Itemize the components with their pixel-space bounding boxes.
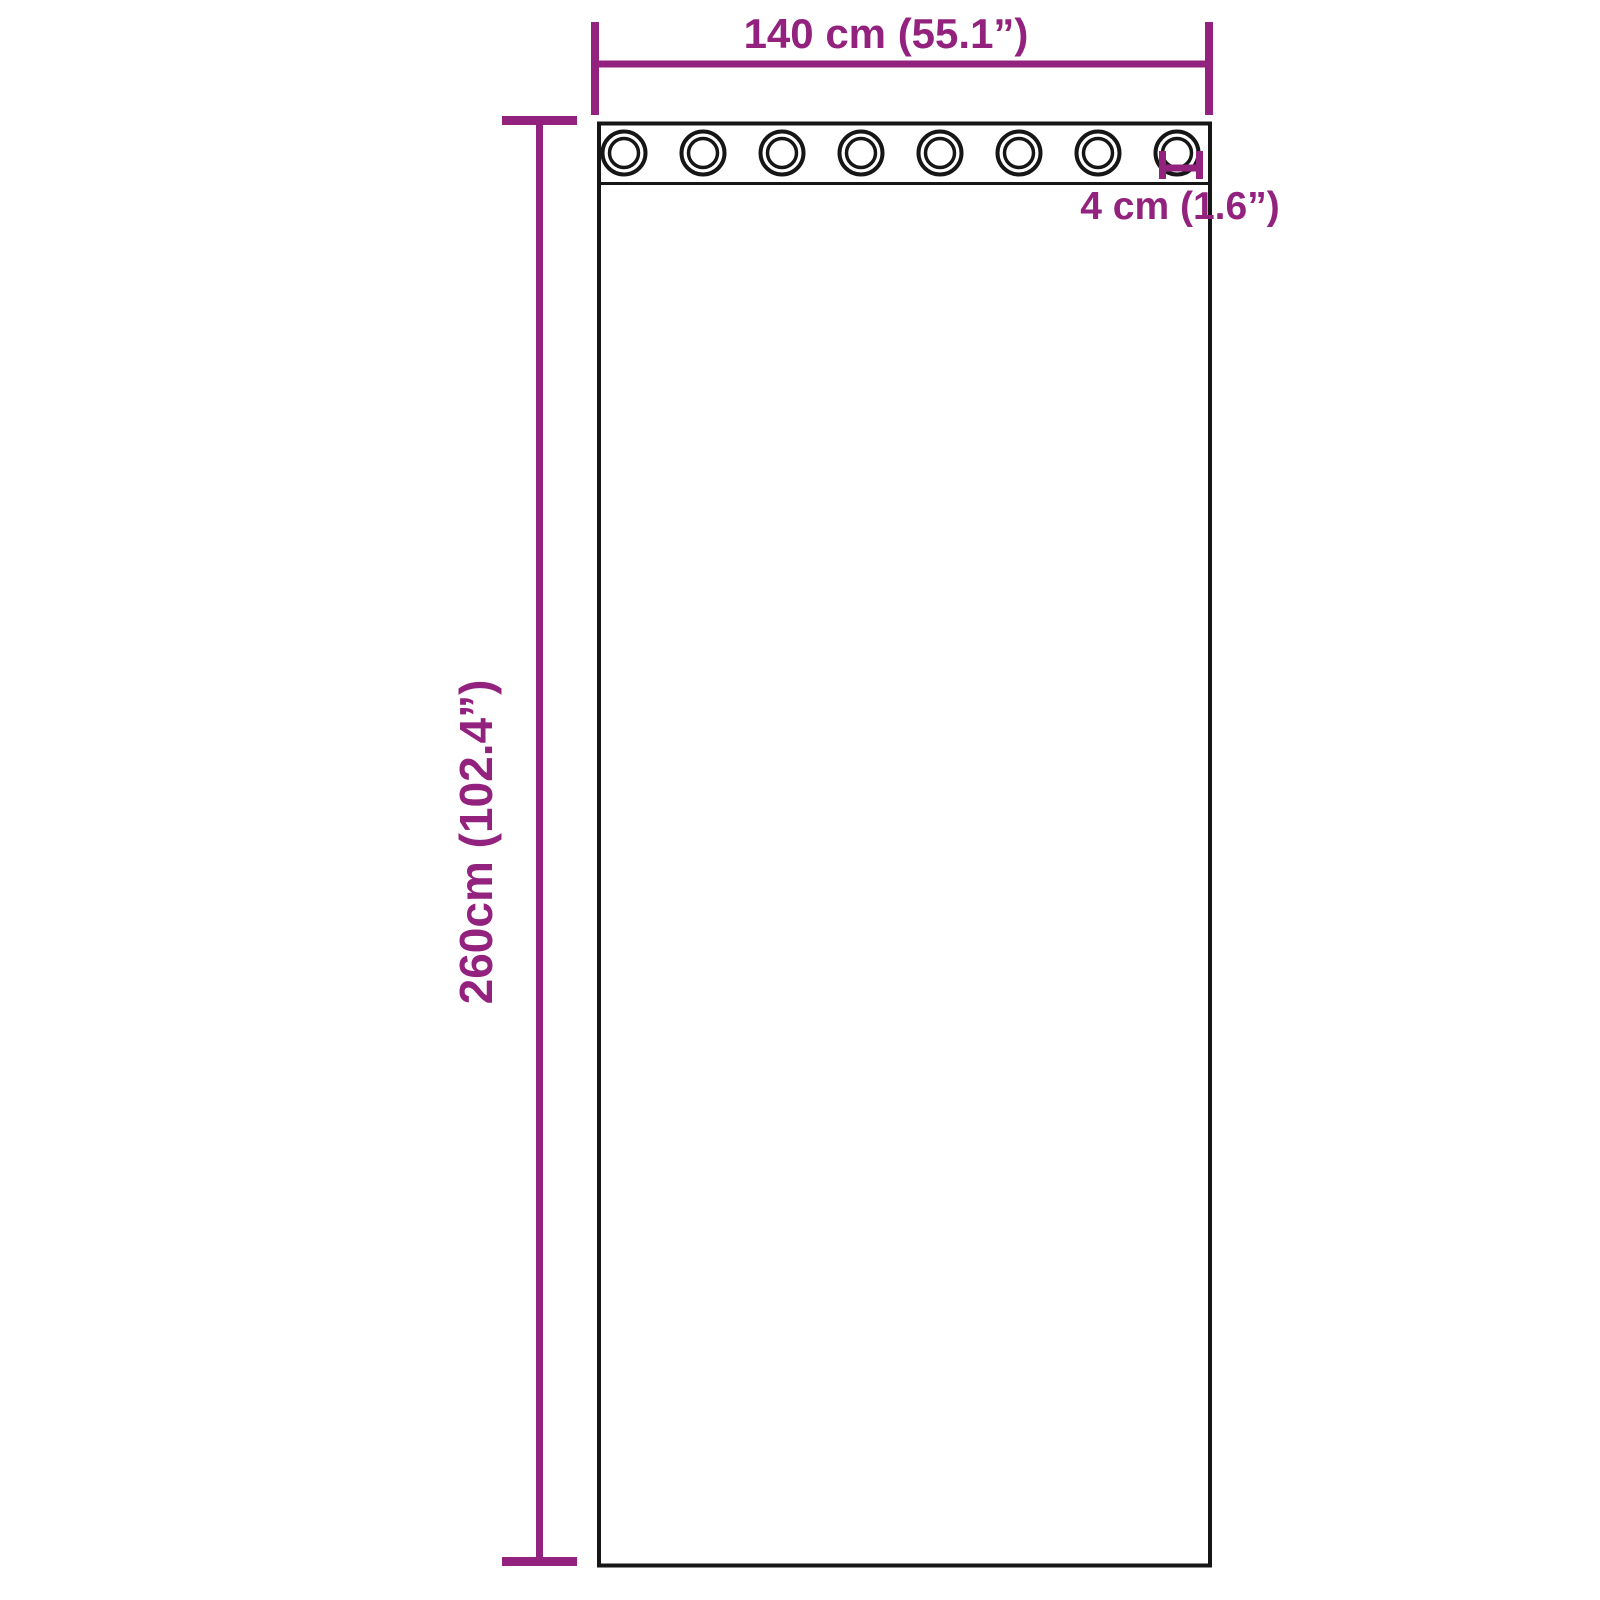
grommet-inner-ring (1163, 139, 1192, 168)
grommet-inner-ring (1084, 139, 1113, 168)
grommet-inner-ring (847, 139, 876, 168)
grommet (603, 132, 646, 175)
grommet-diameter-label: 4 cm (1.6”) (1080, 185, 1279, 228)
height-dimension-label: 260cm (102.4”) (450, 680, 502, 1005)
grommet-inner-ring (1005, 139, 1034, 168)
dimension-diagram: 140 cm (55.1”) 260cm (102.4”) 4 cm (1.6”… (0, 0, 1600, 1600)
curtain-dimension-drawing: 140 cm (55.1”) 260cm (102.4”) 4 cm (1.6”… (0, 0, 1600, 1600)
grommet-inner-ring (689, 139, 718, 168)
grommet-row (603, 132, 1199, 175)
grommet (682, 132, 725, 175)
width-dimension-label: 140 cm (55.1”) (744, 10, 1029, 57)
grommet-inner-ring (610, 139, 639, 168)
curtain-panel (599, 124, 1210, 1566)
grommet (840, 132, 883, 175)
grommet (1077, 132, 1120, 175)
grommet (998, 132, 1041, 175)
width-dimension-tick-right (1205, 22, 1213, 115)
height-dimension: 260cm (102.4”) (450, 116, 577, 1566)
grommet (919, 132, 962, 175)
grommet-inner-ring (926, 139, 955, 168)
grommet (761, 132, 804, 175)
width-dimension: 140 cm (55.1”) (591, 10, 1213, 115)
grommet-inner-ring (768, 139, 797, 168)
grommet-diameter-line (1159, 165, 1203, 172)
width-dimension-tick-left (591, 22, 599, 115)
